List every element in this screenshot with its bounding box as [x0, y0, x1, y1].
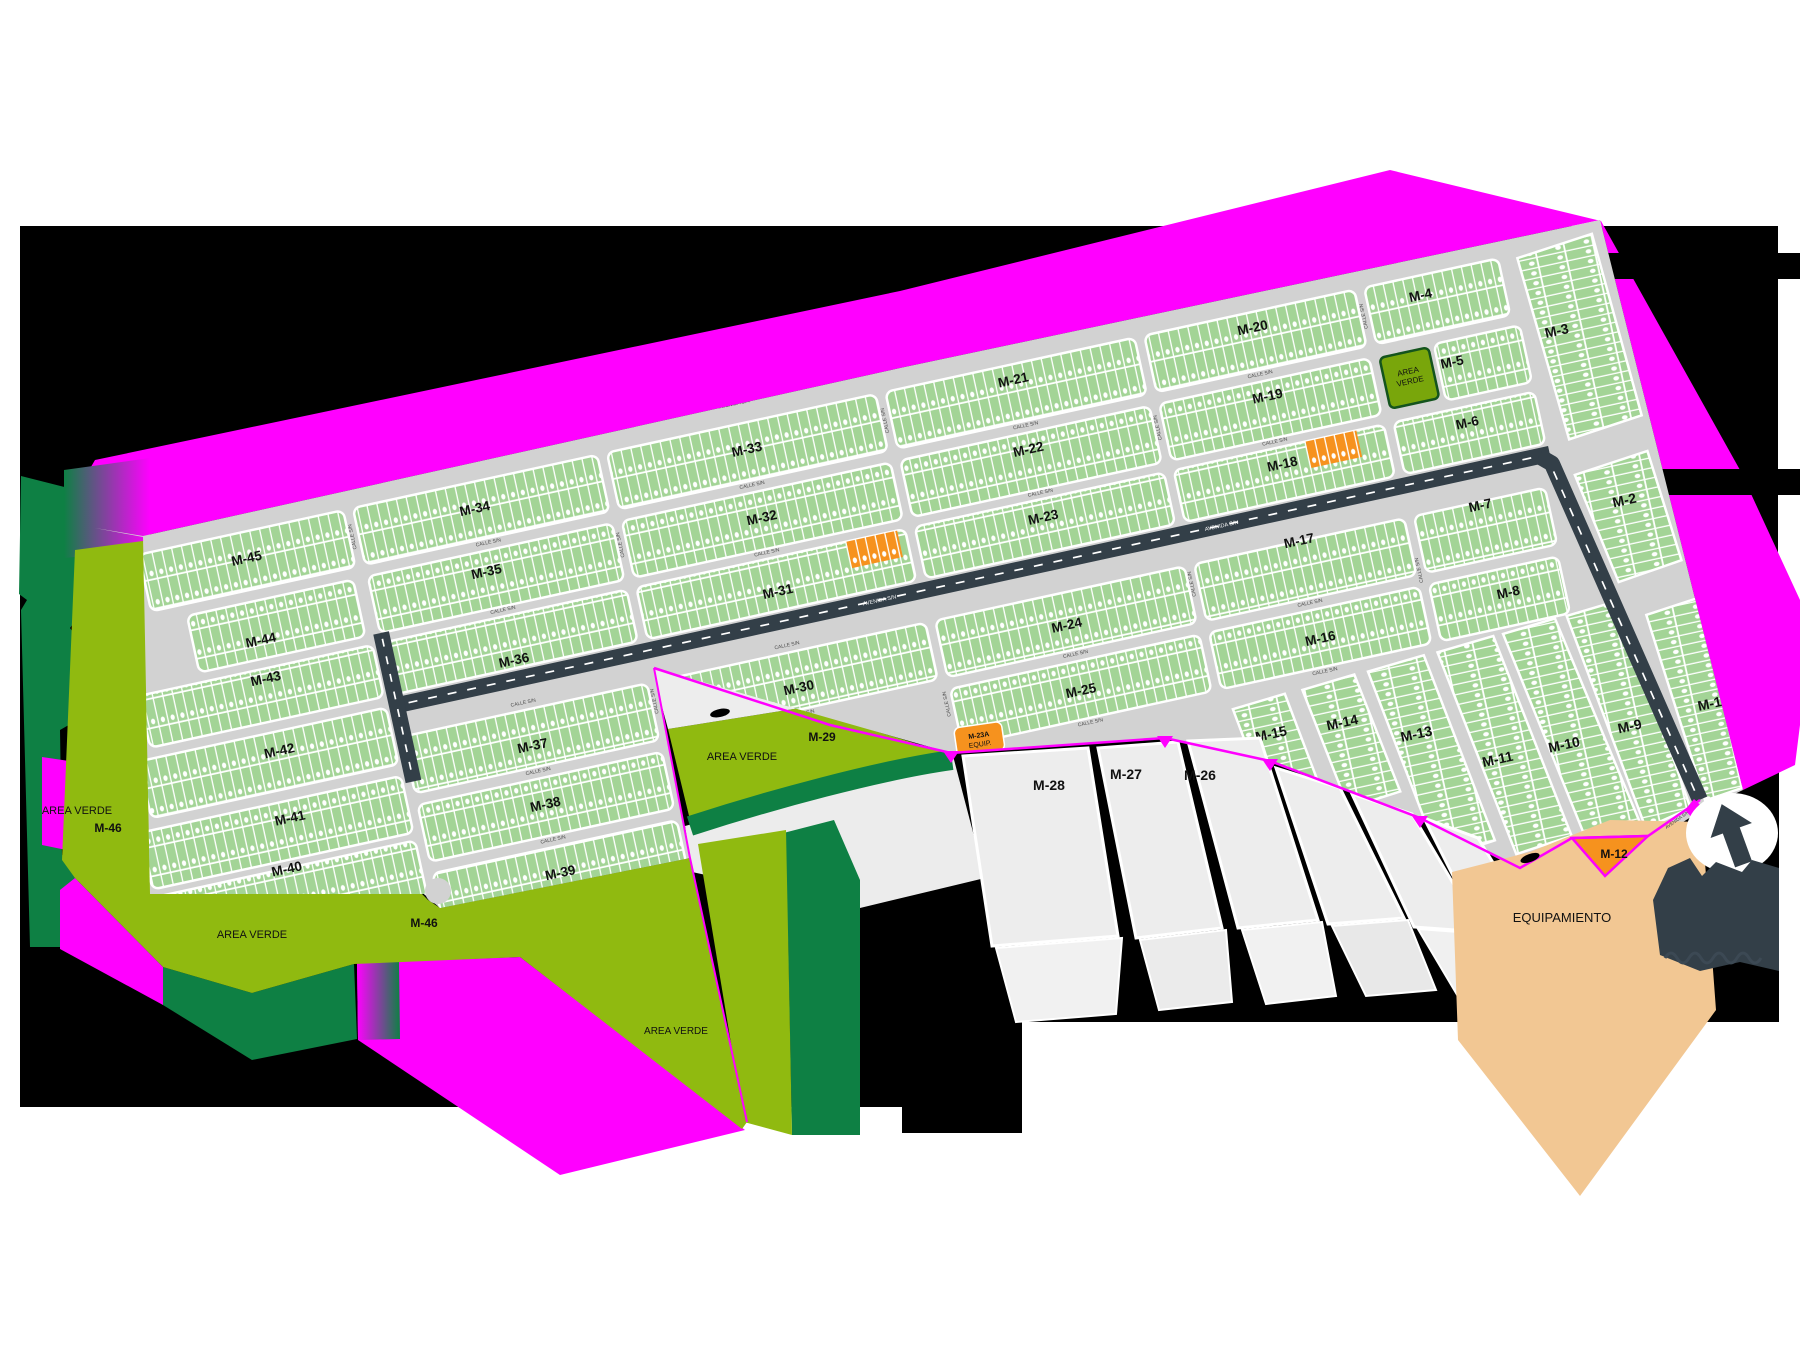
svg-text:AREA VERDE: AREA VERDE: [217, 929, 287, 941]
svg-text:AREA VERDE: AREA VERDE: [707, 751, 777, 763]
svg-text:AREA VERDE: AREA VERDE: [42, 805, 112, 817]
svg-text:M-46: M-46: [410, 916, 438, 930]
svg-text:M-46: M-46: [94, 821, 122, 835]
svg-text:M-29: M-29: [808, 730, 836, 744]
svg-text:M-28: M-28: [1033, 777, 1065, 793]
svg-text:AREA VERDE: AREA VERDE: [644, 1026, 708, 1037]
svg-text:EQUIPAMIENTO: EQUIPAMIENTO: [1513, 910, 1611, 925]
svg-text:M-27: M-27: [1110, 766, 1142, 782]
svg-text:M-12: M-12: [1600, 847, 1628, 861]
svg-text:M-26: M-26: [1184, 767, 1216, 783]
